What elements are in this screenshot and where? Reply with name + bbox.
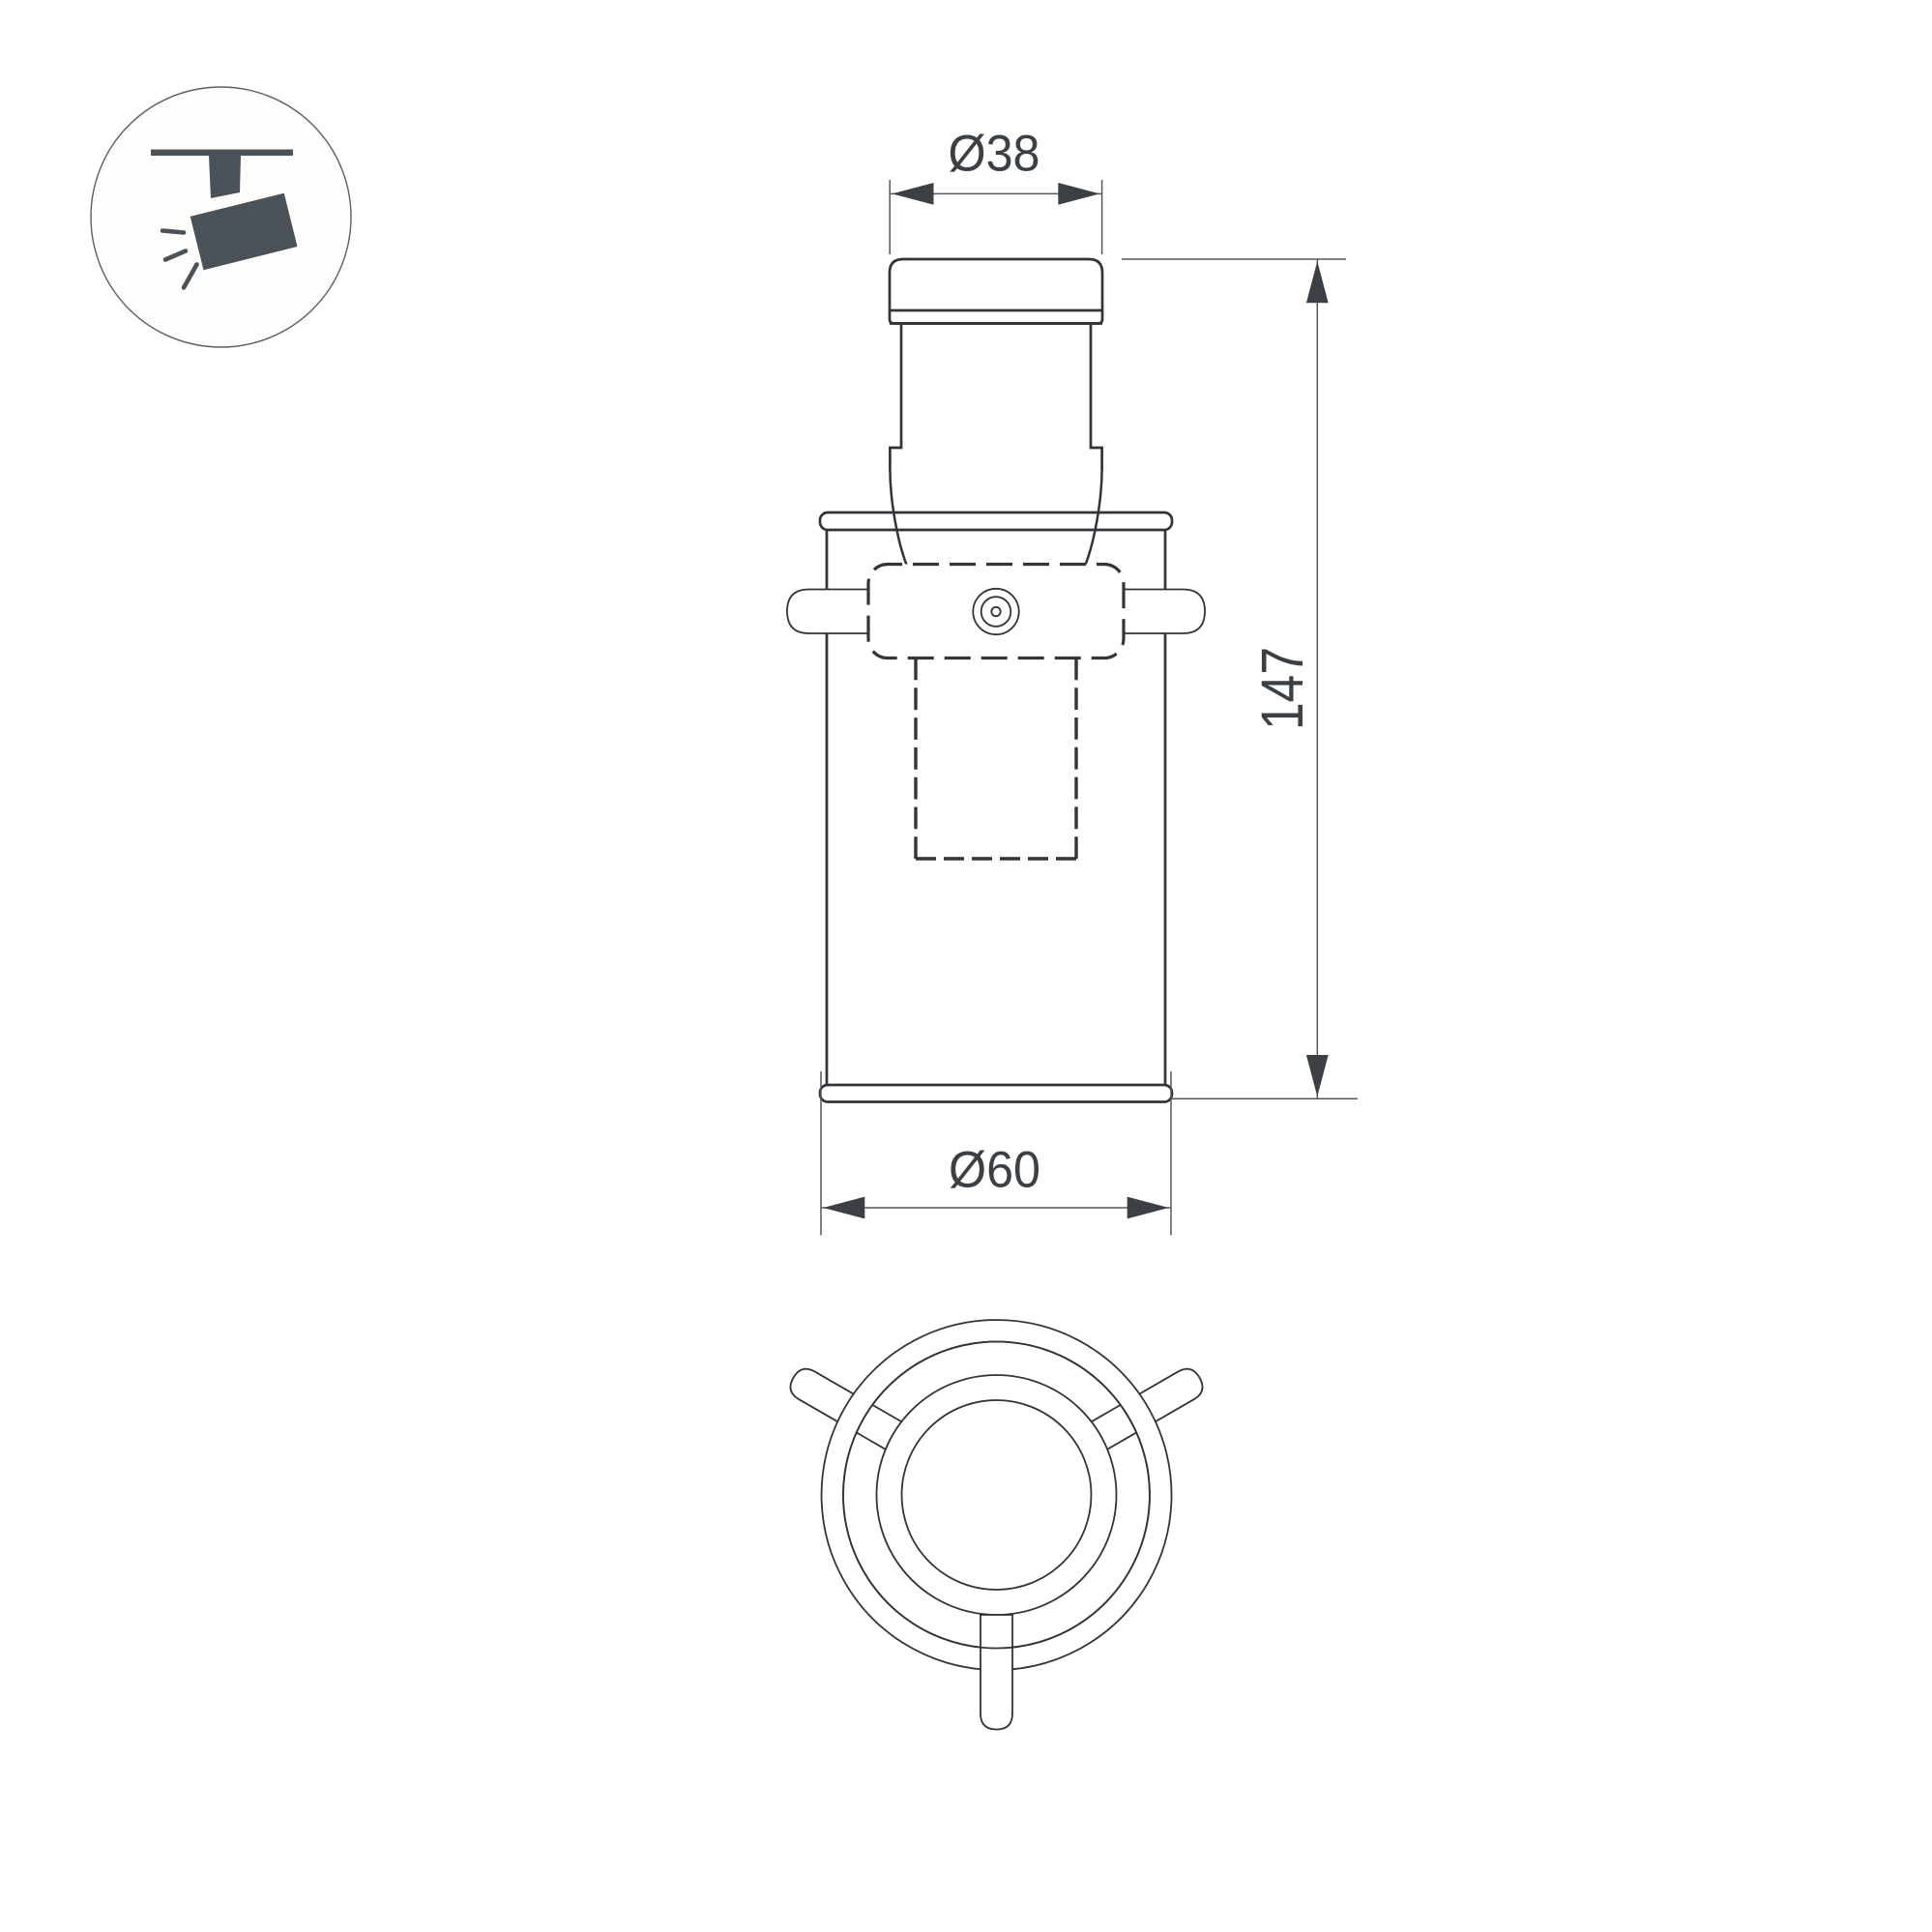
svg-text:Ø38: Ø38 xyxy=(949,126,1040,183)
svg-text:147: 147 xyxy=(1249,647,1315,730)
svg-text:Ø60: Ø60 xyxy=(949,1142,1040,1199)
